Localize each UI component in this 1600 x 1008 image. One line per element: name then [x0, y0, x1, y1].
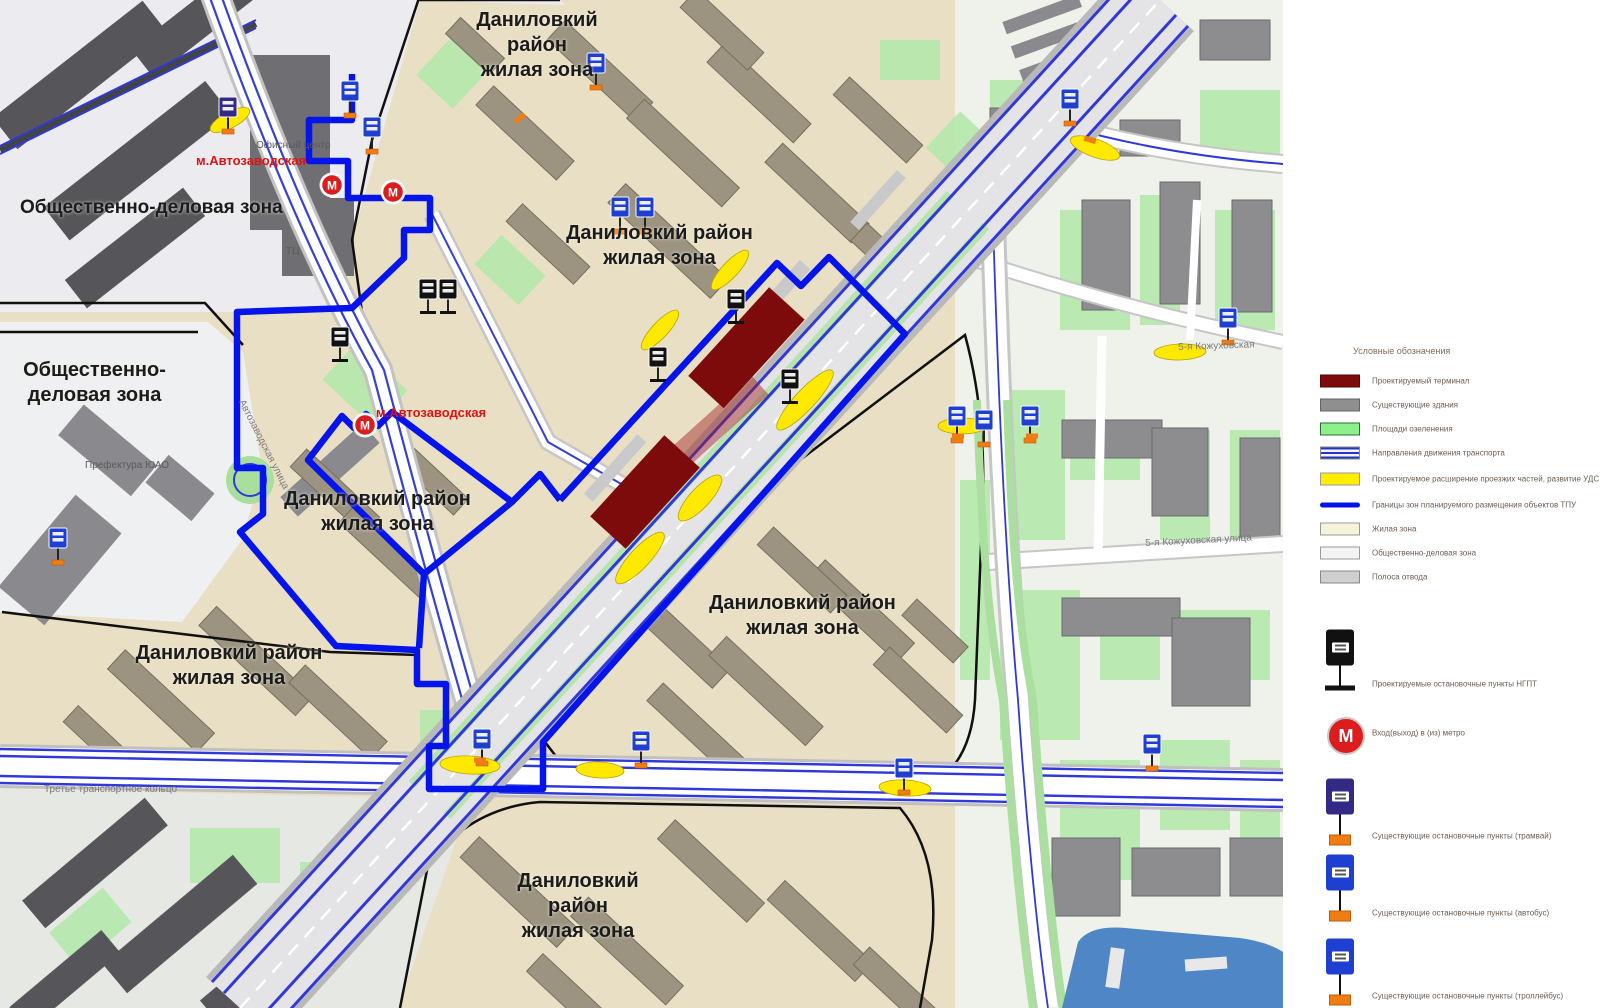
city-map: МММ Общественно-деловая зонаОбщественно-… — [0, 0, 1283, 1008]
metro-entrance-icon: М — [320, 173, 345, 198]
legend-stop-label: Вход(выход) в (из) метро — [1372, 729, 1465, 738]
metro-entrance-icon: М — [381, 180, 406, 205]
legend-stop-label: Существующие остановочные пункты (тролле… — [1372, 992, 1563, 1001]
legend-item-label: Площади озеленения — [1372, 425, 1453, 434]
legend-item-label: Границы зон планируемого размещения объе… — [1372, 501, 1576, 510]
legend-swatch-residential — [1320, 523, 1360, 536]
metro-entrance-icon: М — [353, 413, 378, 438]
legend-item-label: Проектируемое расширение проезжих частей… — [1372, 475, 1599, 484]
map-canvas: МММ — [0, 0, 1283, 1008]
legend-item-label: Общественно-деловая зона — [1372, 549, 1476, 558]
bus-stop-icon — [1323, 939, 1357, 1006]
legend-panel: Условные обозначения Проектируемый терми… — [1283, 0, 1600, 1008]
legend-swatch-terminal — [1320, 375, 1360, 388]
legend-swatch-widening — [1320, 473, 1360, 486]
legend-item-label: Проектируемый терминал — [1372, 377, 1469, 386]
orange-stop-mark — [1026, 434, 1038, 439]
legend-swatch-traffic — [1320, 447, 1360, 460]
svg-text:М: М — [360, 419, 370, 433]
legend-stop-label: Существующие остановочные пункты (трамва… — [1372, 832, 1551, 841]
legend-item-label: Полоса отвода — [1372, 573, 1427, 582]
legend-swatch-building — [1320, 399, 1360, 412]
orange-stop-mark — [474, 758, 486, 763]
legend-swatch-row — [1320, 571, 1360, 584]
projected-ngpt-stop-icon — [1323, 630, 1357, 691]
legend-swatch-odz — [1320, 547, 1360, 560]
legend-item-label: Жилая зона — [1372, 525, 1416, 534]
svg-text:М: М — [327, 179, 337, 193]
legend-item-label: Существующие здания — [1372, 401, 1458, 410]
orange-stop-mark — [952, 434, 964, 439]
tram-stop-icon — [1323, 779, 1357, 846]
legend-title: Условные обозначения — [1353, 346, 1450, 356]
metro-entrance-icon: М — [1327, 717, 1365, 755]
legend-item-label: Направления движения транспорта — [1372, 449, 1505, 458]
legend-swatch-boundary — [1320, 503, 1360, 508]
legend-stop-label: Проектируемые остановочные пункты НГПТ — [1372, 680, 1537, 689]
legend-stop-label: Существующие остановочные пункты (автобу… — [1372, 909, 1549, 918]
bus-stop-icon — [1323, 855, 1357, 922]
svg-text:М: М — [388, 186, 398, 200]
legend-swatch-green — [1320, 423, 1360, 436]
tpu-plan-page: МММ Общественно-деловая зонаОбщественно-… — [0, 0, 1600, 1008]
